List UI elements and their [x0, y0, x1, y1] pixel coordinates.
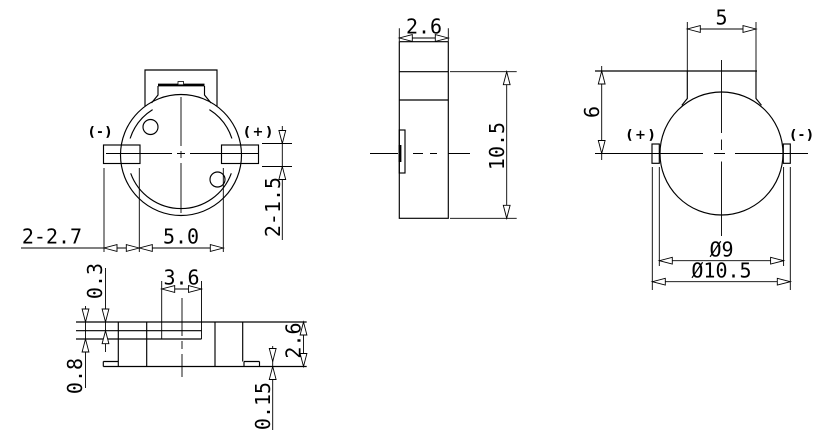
dim-pad-width-label: 2-2.7: [22, 225, 82, 249]
front-contact-notch: [178, 82, 184, 85]
dim-neck-width-label: 5: [715, 6, 727, 30]
dim-foot-label: 0.15: [251, 382, 275, 430]
dim-overall-diameter-label: Ø10.5: [691, 259, 751, 283]
technical-drawing: 2-2.7 5.0 2-1.5 ( - ) ( + ) 2.6: [0, 0, 830, 441]
dim-pad-thickness-label: 2-1.5: [261, 177, 285, 237]
front-negative-terminal-label: ( - ): [89, 125, 110, 140]
side-dimension-width: 2.6: [399, 15, 448, 42]
dim-width-label: 2.6: [406, 15, 442, 39]
front-positive-terminal-label: ( + ): [244, 125, 271, 140]
dim-step-label: 0.3: [83, 263, 107, 299]
dim-base-label: 0.8: [63, 358, 87, 394]
back-positive-terminal-label: ( + ): [627, 128, 654, 143]
dim-slot-width-label: 3.6: [163, 266, 199, 290]
dim-height-label: 2.6: [282, 322, 306, 358]
dim-height-label: 10.5: [485, 122, 509, 170]
dim-neck-height-label: 6: [580, 106, 604, 118]
back-negative-terminal-label: ( - ): [790, 128, 811, 143]
drawing-background: [0, 0, 830, 441]
dim-pad-gap-label: 5.0: [163, 225, 199, 249]
